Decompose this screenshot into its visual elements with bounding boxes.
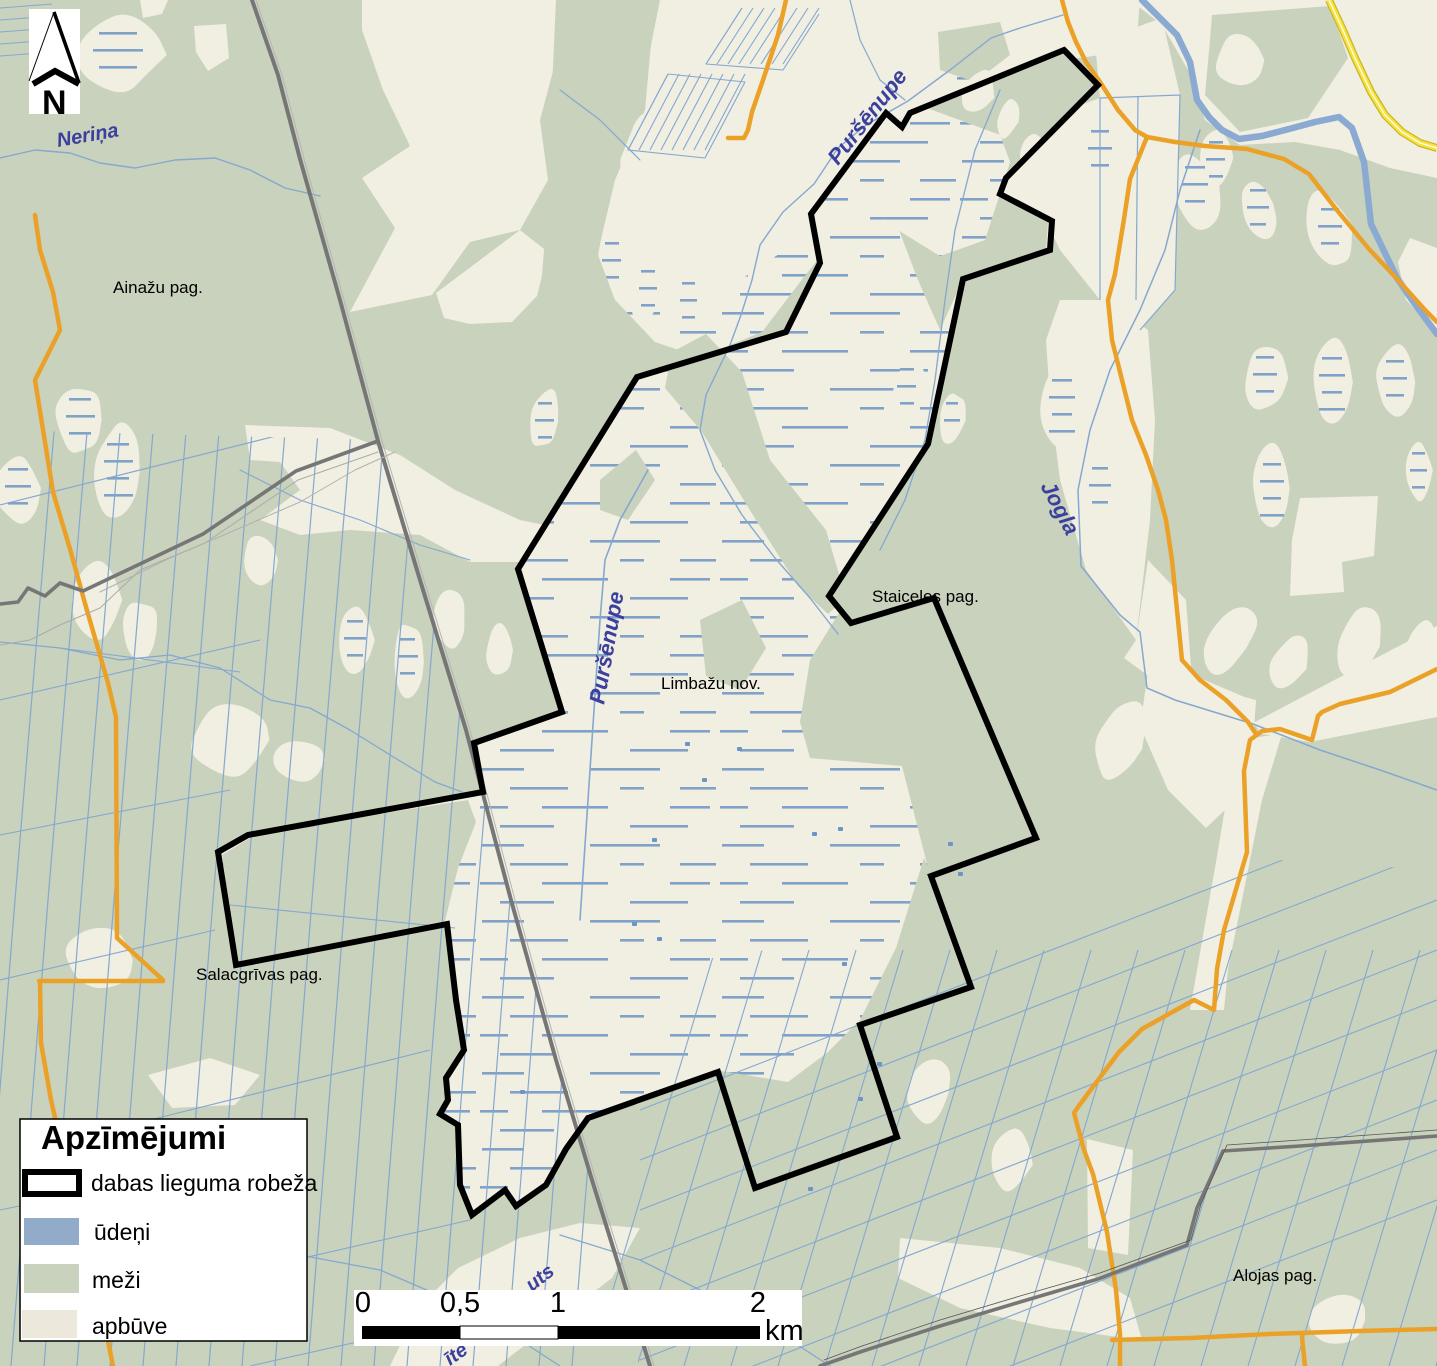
svg-text:Limbažu nov.: Limbažu nov. xyxy=(661,674,761,693)
svg-text:Staiceles pag.: Staiceles pag. xyxy=(872,587,979,606)
svg-text:0: 0 xyxy=(355,1287,371,1319)
svg-text:2: 2 xyxy=(750,1287,766,1319)
svg-text:Alojas pag.: Alojas pag. xyxy=(1233,1266,1317,1285)
svg-text:N: N xyxy=(42,84,67,122)
svg-text:meži: meži xyxy=(92,1267,141,1293)
svg-text:km: km xyxy=(765,1315,804,1347)
svg-text:dabas lieguma robeža: dabas lieguma robeža xyxy=(91,1170,318,1196)
svg-text:Ainažu pag.: Ainažu pag. xyxy=(113,278,203,297)
svg-text:1: 1 xyxy=(550,1287,566,1319)
svg-text:Apzīmējumi: Apzīmējumi xyxy=(41,1119,226,1156)
svg-text:ūdeņi: ūdeņi xyxy=(94,1219,150,1245)
svg-text:Salacgrīvas pag.: Salacgrīvas pag. xyxy=(196,965,323,984)
svg-text:0,5: 0,5 xyxy=(440,1287,480,1319)
svg-text:apbūve: apbūve xyxy=(92,1313,167,1339)
